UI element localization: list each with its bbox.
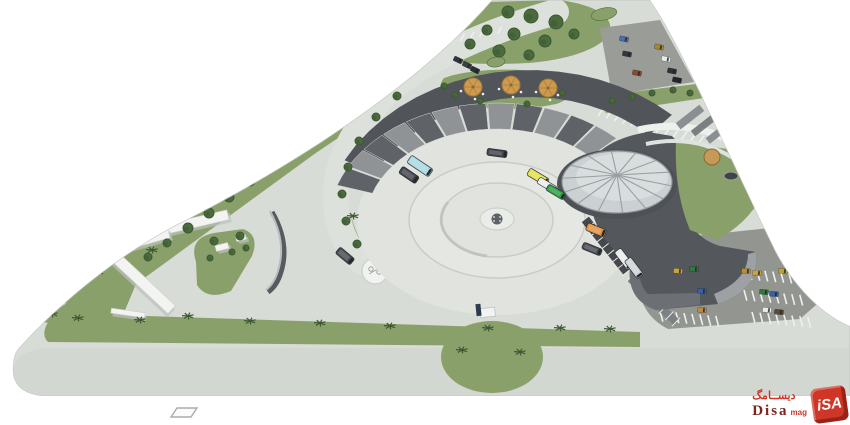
tree — [163, 239, 171, 247]
tree — [204, 208, 214, 218]
dome-building — [557, 149, 677, 219]
watermark-cube-text: iSA — [816, 394, 843, 414]
tree — [502, 6, 514, 18]
tree — [144, 253, 152, 261]
car — [673, 268, 682, 274]
car — [762, 307, 771, 313]
white-structure — [137, 205, 182, 226]
tree — [245, 176, 255, 186]
tree — [508, 28, 520, 40]
tree — [687, 90, 693, 96]
tree — [477, 98, 483, 104]
tree — [524, 50, 534, 60]
parking-line — [433, 39, 437, 46]
parking-line — [414, 43, 418, 50]
watermark-cube-icon: iSA — [810, 385, 850, 425]
tree — [629, 94, 635, 100]
tree — [357, 93, 367, 103]
watermark-logo: ديســامگ Disa mag iSA — [752, 387, 847, 422]
tree — [465, 39, 475, 49]
tree — [338, 190, 346, 198]
tree — [524, 101, 530, 107]
watermark-text: ديســامگ Disa mag — [752, 391, 807, 419]
car — [774, 309, 783, 315]
tree — [236, 232, 244, 240]
tree — [549, 15, 563, 29]
perimeter-road — [13, 348, 850, 396]
car — [752, 270, 761, 276]
car — [697, 307, 706, 313]
car — [741, 268, 750, 274]
scale-marker — [171, 408, 197, 417]
parking-line — [423, 41, 427, 48]
tree — [183, 223, 193, 233]
site-plan-canvas — [0, 0, 850, 425]
tree — [441, 83, 447, 89]
tree — [482, 25, 492, 35]
tree — [353, 240, 361, 248]
tree — [243, 245, 249, 251]
tree — [569, 29, 579, 39]
canopy-panel — [488, 103, 515, 130]
tree — [287, 144, 297, 154]
tree — [539, 35, 551, 47]
tree — [524, 9, 538, 23]
tan-tree — [704, 149, 720, 165]
tree — [224, 192, 234, 202]
tree — [372, 113, 380, 121]
car — [778, 268, 787, 274]
tree — [266, 160, 276, 170]
bottom-green-circle — [441, 321, 543, 393]
tree — [207, 255, 213, 261]
tree — [308, 128, 318, 138]
tree — [229, 249, 235, 255]
site-plan-rendering: ديســامگ Disa mag iSA — [0, 0, 850, 425]
tree — [384, 75, 394, 85]
car — [769, 291, 778, 297]
car — [689, 266, 698, 272]
car — [759, 289, 768, 295]
tree — [670, 87, 676, 93]
roof-pond — [724, 172, 738, 180]
tree — [559, 90, 565, 96]
parking-lot-topright — [600, 20, 694, 95]
tree — [493, 45, 505, 57]
tree — [344, 163, 352, 171]
tree — [355, 137, 363, 145]
parking-line — [442, 37, 446, 44]
tree — [210, 237, 218, 245]
plaza-fountain — [492, 214, 503, 225]
watermark-brand-suffix: mag — [791, 409, 807, 417]
tree — [609, 98, 615, 104]
car — [697, 288, 706, 294]
parking-line — [797, 274, 800, 285]
watermark-brand-name: Disa — [752, 404, 788, 419]
tree — [333, 111, 343, 121]
watermark-arabic-text: ديســامگ — [752, 391, 795, 402]
tree — [649, 90, 655, 96]
tree — [393, 92, 401, 100]
tree — [452, 92, 458, 98]
